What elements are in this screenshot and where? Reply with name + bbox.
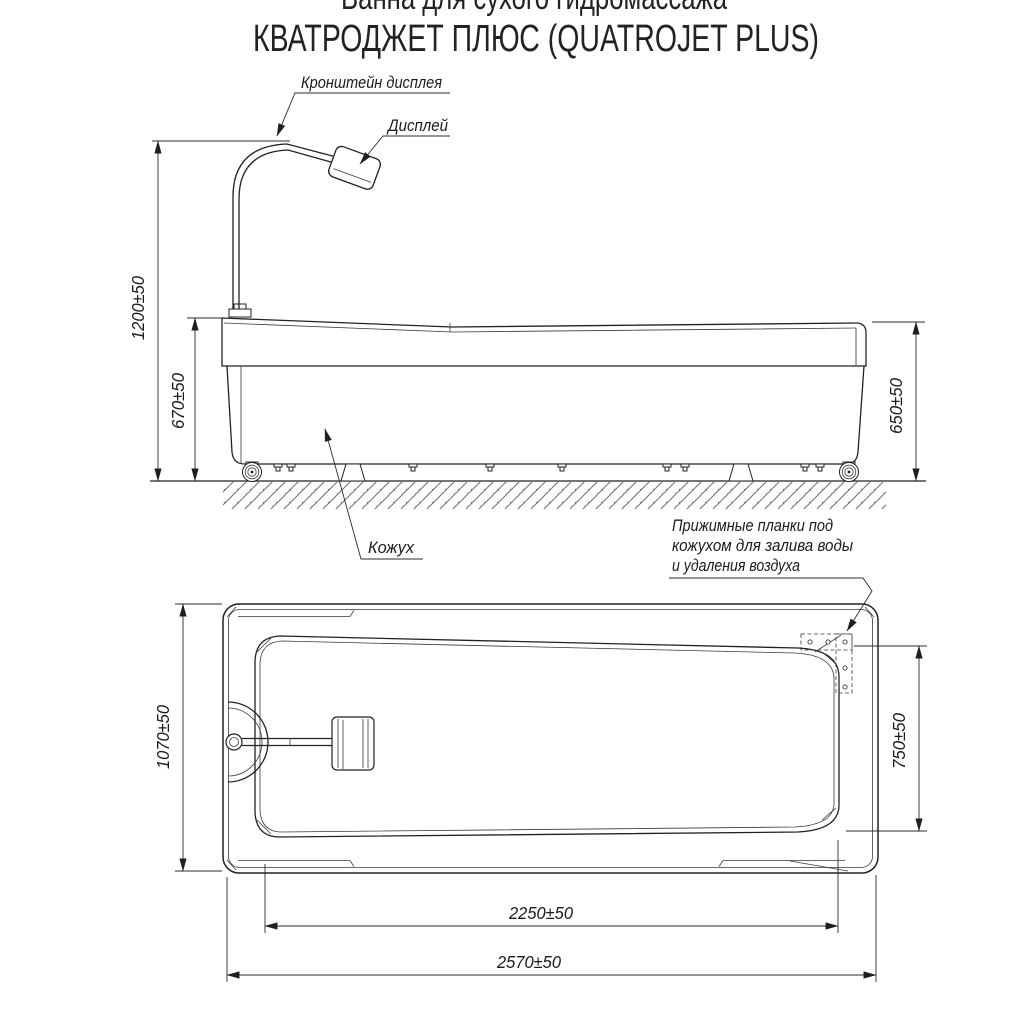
transport-foot [341, 464, 365, 481]
display-arm-top-view [226, 717, 374, 770]
dimension-overall-width: 1070±50 [153, 604, 222, 871]
caster-left [243, 462, 262, 482]
display-label: Дисплей [386, 116, 448, 135]
plates-note-line-2: кожухом для залива воды [672, 536, 853, 555]
technical-drawing: Ванна для сухого гидромассажа КВАТРОДЖЕТ… [0, 0, 1024, 1024]
plates-note-line-3: и удаления воздуха [672, 556, 800, 575]
ground-line [150, 481, 926, 509]
drawing-title: Ванна для сухого гидромассажа КВАТРОДЖЕТ… [253, 0, 819, 60]
dim-1070-label: 1070±50 [153, 705, 173, 769]
ground-hatch [223, 482, 886, 509]
drawing-canvas: Ванна для сухого гидромассажа КВАТРОДЖЕТ… [0, 0, 1024, 1024]
display-bracket-label: Кронштейн дисплея [301, 73, 442, 92]
side-view: Кронштейн дисплея Дисплей Кожух 1200±50 … [128, 73, 926, 559]
pressure-plates [801, 634, 852, 693]
dimension-overall-height: 1200±50 [128, 141, 290, 481]
annotation-pressure-plates: Прижимные планки под кожухом для залива … [669, 516, 872, 631]
title-line-2: КВАТРОДЖЕТ ПЛЮС (QUATROJET PLUS) [253, 18, 819, 60]
title-line-1: Ванна для сухого гидромассажа [341, 0, 727, 17]
caster-right [840, 462, 859, 482]
tub-rim [222, 318, 866, 366]
display-screen [327, 145, 382, 191]
dimension-inner-width: 750±50 [846, 646, 927, 831]
dim-1200-label: 1200±50 [128, 276, 148, 340]
dimension-tub-height: 650±50 [872, 322, 925, 481]
arm-base [229, 309, 251, 317]
dim-670-label: 670±50 [168, 373, 188, 429]
dimension-inner-length: 2250±50 [265, 840, 838, 933]
dim-2250-label: 2250±50 [508, 903, 573, 923]
transport-foot [729, 464, 753, 481]
support-feet [274, 464, 824, 481]
casing-label: Кожух [368, 538, 414, 557]
display-arm [229, 144, 382, 317]
dim-650-label: 650±50 [886, 378, 906, 434]
dim-750-label: 750±50 [889, 713, 909, 769]
dimension-overall-length: 2570±50 [227, 875, 876, 982]
label-display: Дисплей [360, 116, 450, 164]
plates-note-line-1: Прижимные планки под [672, 516, 833, 535]
tub-casing [227, 366, 864, 464]
dim-2570-label: 2570±50 [496, 952, 561, 972]
plan-view: Прижимные планки под кожухом для залива … [153, 516, 927, 982]
dimension-casing-height: 670±50 [168, 318, 222, 481]
